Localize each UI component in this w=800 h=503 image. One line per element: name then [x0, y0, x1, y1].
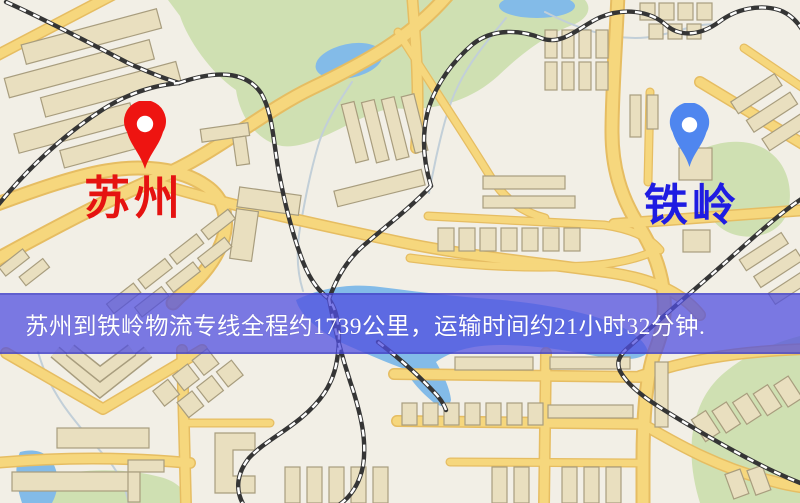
map-screenshot: 苏州 铁岭 苏州到铁岭物流专线全程约1739公里，运输时间约21小时32分钟. [0, 0, 800, 503]
route-info-banner: 苏州到铁岭物流专线全程约1739公里，运输时间约21小时32分钟. [0, 293, 800, 354]
map-canvas [0, 0, 800, 503]
destination-pin-icon[interactable] [667, 103, 712, 169]
origin-pin-icon[interactable] [121, 101, 169, 171]
destination-city-label: 铁岭 [644, 184, 740, 228]
route-info-text: 苏州到铁岭物流专线全程约1739公里，运输时间约21小时32分钟. [0, 307, 705, 341]
origin-city-label: 苏州 [84, 176, 184, 222]
